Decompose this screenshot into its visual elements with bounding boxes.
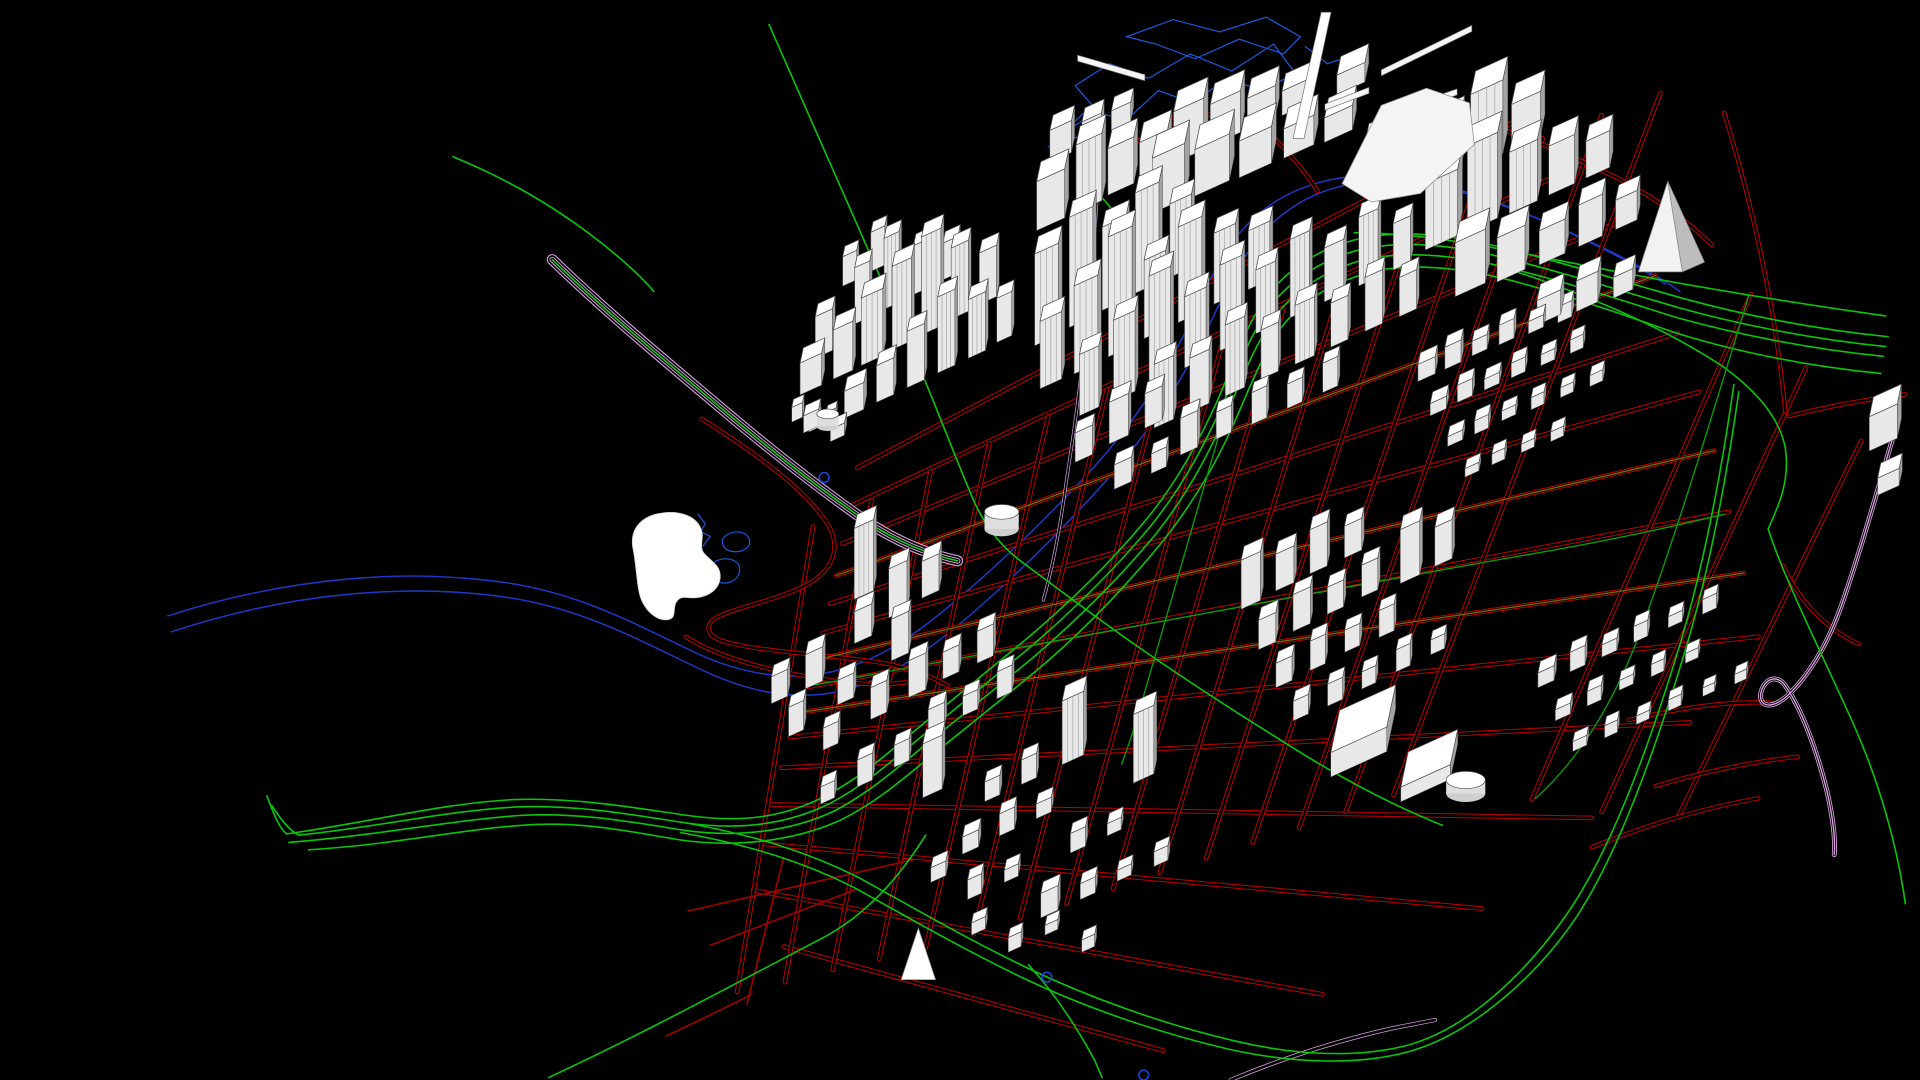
building — [1109, 381, 1131, 444]
building — [997, 654, 1014, 698]
building — [854, 505, 876, 599]
city-model-viewport[interactable] — [0, 0, 1920, 1080]
building — [1114, 445, 1134, 489]
building — [800, 338, 825, 395]
layer-rail-east — [1761, 429, 1896, 855]
building — [1634, 610, 1650, 643]
building — [871, 669, 890, 720]
building — [1040, 296, 1065, 388]
building — [977, 612, 996, 663]
building — [938, 276, 958, 373]
building — [1497, 205, 1529, 282]
building — [1151, 436, 1168, 473]
building — [1435, 506, 1455, 566]
building — [1448, 419, 1465, 446]
layer-rail-south — [1231, 1020, 1435, 1080]
building — [999, 796, 1016, 835]
building — [1082, 925, 1097, 953]
building — [1502, 395, 1518, 421]
building — [1396, 633, 1412, 672]
building — [1004, 853, 1020, 882]
building — [1216, 395, 1233, 439]
building — [1362, 655, 1378, 689]
building — [1379, 593, 1396, 637]
building — [1549, 116, 1579, 196]
building — [1145, 374, 1165, 428]
building — [1551, 417, 1566, 442]
building — [923, 721, 945, 798]
building — [1484, 362, 1501, 390]
building — [1605, 710, 1620, 738]
building — [931, 850, 948, 882]
building — [1616, 175, 1641, 229]
building — [844, 368, 866, 418]
building — [876, 345, 896, 403]
building — [1310, 509, 1330, 574]
building — [891, 600, 911, 661]
building — [1261, 309, 1281, 379]
building — [1393, 203, 1413, 270]
building — [1287, 367, 1304, 409]
building — [792, 394, 804, 422]
building — [1259, 600, 1279, 650]
building — [1327, 568, 1346, 614]
building — [805, 634, 825, 689]
building — [833, 307, 855, 379]
building — [1037, 149, 1069, 231]
building — [1239, 103, 1276, 178]
building — [1570, 635, 1587, 672]
building — [1008, 922, 1023, 952]
building — [1080, 332, 1102, 416]
building — [1431, 624, 1447, 654]
building — [1499, 308, 1516, 345]
building — [1455, 208, 1490, 297]
building — [963, 679, 980, 716]
building — [907, 311, 927, 388]
building — [1295, 283, 1317, 365]
dome-roof — [1446, 771, 1485, 788]
layer-road-curves — [686, 113, 1906, 848]
building — [1070, 816, 1087, 853]
building — [1590, 360, 1605, 386]
lake-shape — [632, 513, 720, 620]
building — [1703, 674, 1717, 696]
building — [962, 818, 981, 854]
building — [854, 591, 874, 644]
building — [1400, 507, 1422, 584]
building — [1276, 644, 1295, 688]
building — [1365, 257, 1385, 332]
dome-roof — [817, 409, 839, 419]
building — [1293, 575, 1313, 631]
building — [985, 765, 1002, 802]
building — [1878, 453, 1903, 495]
building — [1062, 676, 1087, 765]
building — [997, 280, 1015, 343]
building — [1492, 439, 1507, 465]
building — [1021, 743, 1038, 785]
building — [1560, 372, 1575, 397]
node-dot — [1139, 1070, 1149, 1080]
building — [1579, 178, 1606, 247]
building — [1541, 339, 1557, 366]
building — [1075, 413, 1095, 462]
building — [1331, 282, 1351, 347]
building — [909, 641, 929, 697]
dome-roof — [984, 504, 1018, 519]
building — [1323, 346, 1340, 393]
building — [1613, 254, 1635, 298]
building — [1225, 302, 1247, 396]
building — [1276, 533, 1297, 591]
building — [1509, 120, 1541, 214]
building — [1036, 787, 1053, 819]
building — [1586, 114, 1613, 178]
building — [1636, 701, 1651, 725]
building — [1310, 623, 1328, 671]
building — [922, 541, 942, 599]
city-3d-scene-canvas — [0, 0, 1920, 1080]
building — [1241, 537, 1263, 609]
building — [823, 711, 840, 750]
layer-lake — [632, 513, 720, 620]
building — [857, 743, 874, 787]
building — [789, 689, 807, 737]
building — [1108, 118, 1138, 195]
building — [1344, 506, 1364, 557]
building — [1869, 384, 1901, 451]
building — [1293, 684, 1310, 721]
building — [1345, 613, 1362, 652]
building — [1587, 674, 1603, 706]
building — [1252, 375, 1269, 424]
building — [1180, 399, 1200, 455]
building — [1133, 691, 1156, 783]
building — [1668, 601, 1684, 628]
building — [1190, 335, 1212, 412]
building — [1399, 257, 1419, 317]
building — [1521, 429, 1536, 453]
node-dot — [819, 473, 829, 483]
building — [1154, 836, 1170, 866]
building — [1362, 546, 1381, 597]
building — [1445, 328, 1464, 369]
building — [968, 279, 988, 359]
building — [1539, 201, 1569, 265]
building — [1619, 665, 1635, 691]
building — [943, 633, 962, 679]
